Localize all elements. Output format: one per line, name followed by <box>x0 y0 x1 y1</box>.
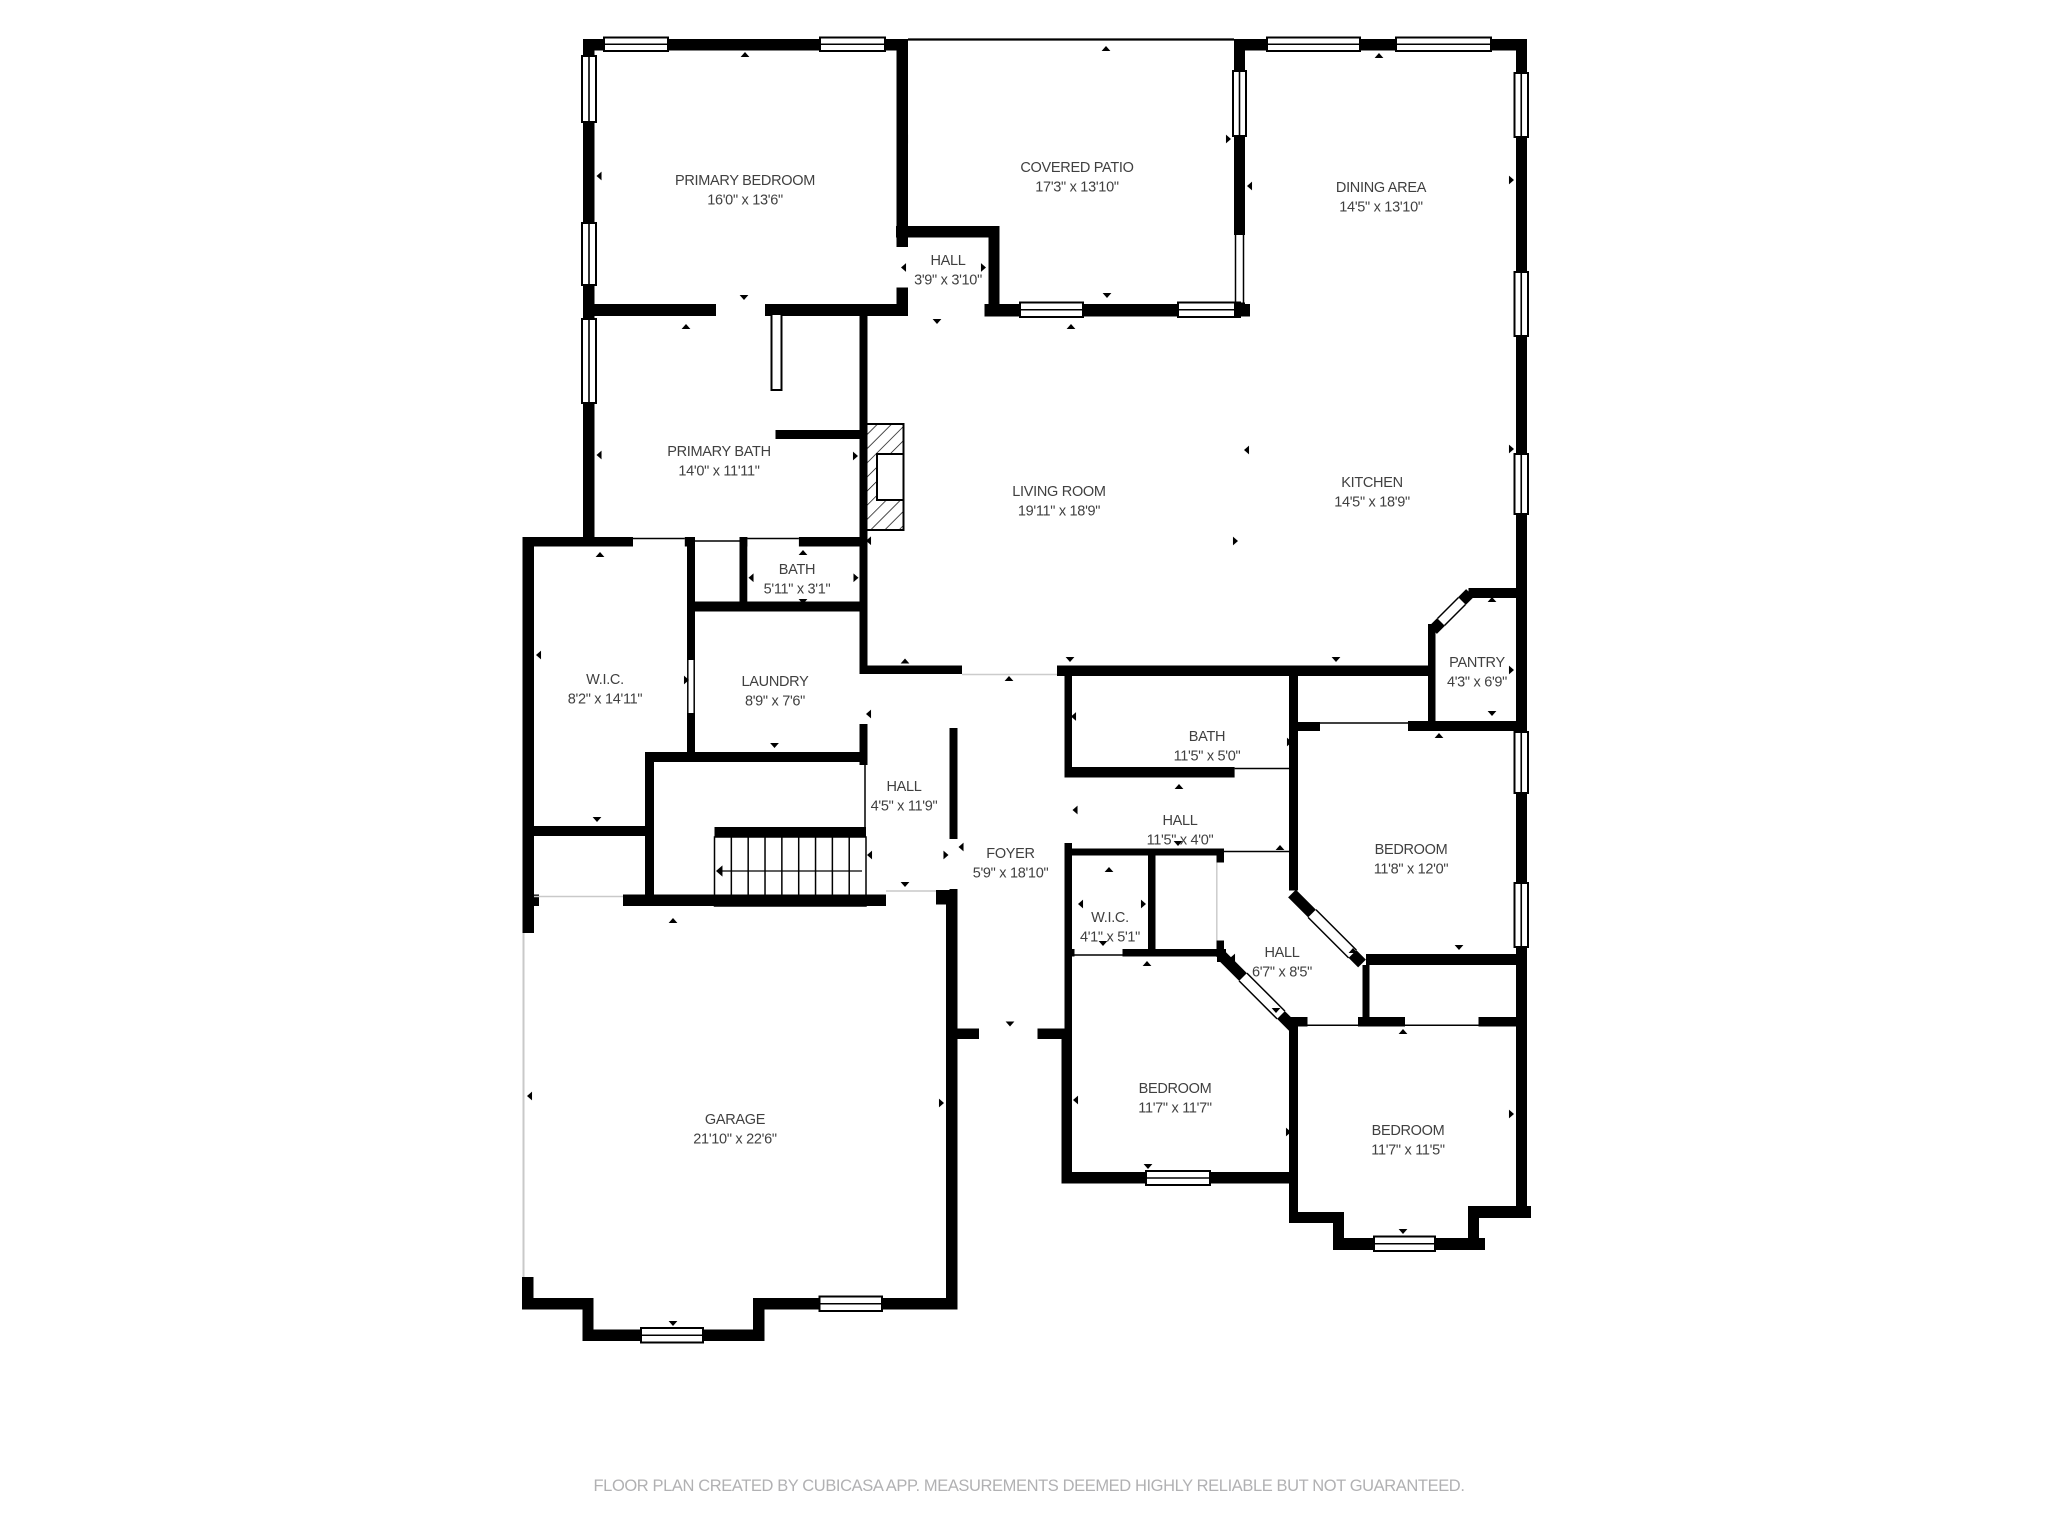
svg-text:3'9" x 3'10": 3'9" x 3'10" <box>914 273 982 289</box>
svg-text:6'7" x 8'5": 6'7" x 8'5" <box>1252 965 1312 981</box>
svg-text:FOYER: FOYER <box>986 846 1034 862</box>
svg-text:HALL: HALL <box>1162 813 1197 829</box>
svg-text:KITCHEN: KITCHEN <box>1341 475 1403 491</box>
svg-text:PRIMARY BEDROOM: PRIMARY BEDROOM <box>675 173 815 189</box>
svg-text:LIVING ROOM: LIVING ROOM <box>1012 484 1105 500</box>
svg-text:4'5" x 11'9": 4'5" x 11'9" <box>871 799 938 815</box>
svg-text:HALL: HALL <box>886 779 921 795</box>
svg-text:BATH: BATH <box>1189 729 1225 745</box>
svg-text:W.I.C.: W.I.C. <box>586 672 624 688</box>
svg-text:8'2" x 14'11": 8'2" x 14'11" <box>568 692 643 708</box>
svg-text:11'8" x 12'0": 11'8" x 12'0" <box>1374 862 1449 878</box>
svg-text:FLOOR PLAN CREATED BY CUBICASA: FLOOR PLAN CREATED BY CUBICASA APP. MEAS… <box>593 1477 1464 1495</box>
svg-text:14'5" x 13'10": 14'5" x 13'10" <box>1339 200 1423 216</box>
svg-text:BEDROOM: BEDROOM <box>1375 842 1448 858</box>
svg-text:PRIMARY BATH: PRIMARY BATH <box>667 444 771 460</box>
svg-text:BEDROOM: BEDROOM <box>1139 1081 1212 1097</box>
svg-text:16'0" x 13'6": 16'0" x 13'6" <box>707 193 783 209</box>
svg-text:5'9" x 18'10": 5'9" x 18'10" <box>973 866 1049 882</box>
svg-text:14'5" x 18'9": 14'5" x 18'9" <box>1334 495 1410 511</box>
svg-text:17'3" x 13'10": 17'3" x 13'10" <box>1035 180 1119 196</box>
svg-text:LAUNDRY: LAUNDRY <box>742 674 810 690</box>
svg-text:21'10" x 22'6": 21'10" x 22'6" <box>693 1132 777 1148</box>
svg-text:11'7" x 11'7": 11'7" x 11'7" <box>1138 1101 1212 1117</box>
svg-text:BEDROOM: BEDROOM <box>1372 1123 1445 1139</box>
svg-text:DINING AREA: DINING AREA <box>1336 180 1427 196</box>
svg-text:HALL: HALL <box>1264 945 1299 961</box>
svg-text:19'11" x 18'9": 19'11" x 18'9" <box>1018 504 1100 520</box>
svg-text:PANTRY: PANTRY <box>1449 655 1505 671</box>
svg-text:11'7" x 11'5": 11'7" x 11'5" <box>1371 1143 1445 1159</box>
svg-text:HALL: HALL <box>930 253 965 269</box>
svg-text:14'0" x 11'11": 14'0" x 11'11" <box>678 464 759 480</box>
svg-text:11'5" x 4'0": 11'5" x 4'0" <box>1147 833 1214 849</box>
svg-text:GARAGE: GARAGE <box>705 1112 766 1128</box>
svg-text:11'5" x 5'0": 11'5" x 5'0" <box>1174 749 1241 765</box>
svg-text:4'3" x 6'9": 4'3" x 6'9" <box>1447 675 1507 691</box>
svg-text:COVERED PATIO: COVERED PATIO <box>1020 160 1133 176</box>
svg-text:8'9" x 7'6": 8'9" x 7'6" <box>745 694 805 710</box>
svg-text:W.I.C.: W.I.C. <box>1091 910 1129 926</box>
svg-text:4'1" x 5'1": 4'1" x 5'1" <box>1080 930 1140 946</box>
svg-text:BATH: BATH <box>779 562 815 578</box>
svg-text:5'11" x 3'1": 5'11" x 3'1" <box>764 582 831 598</box>
